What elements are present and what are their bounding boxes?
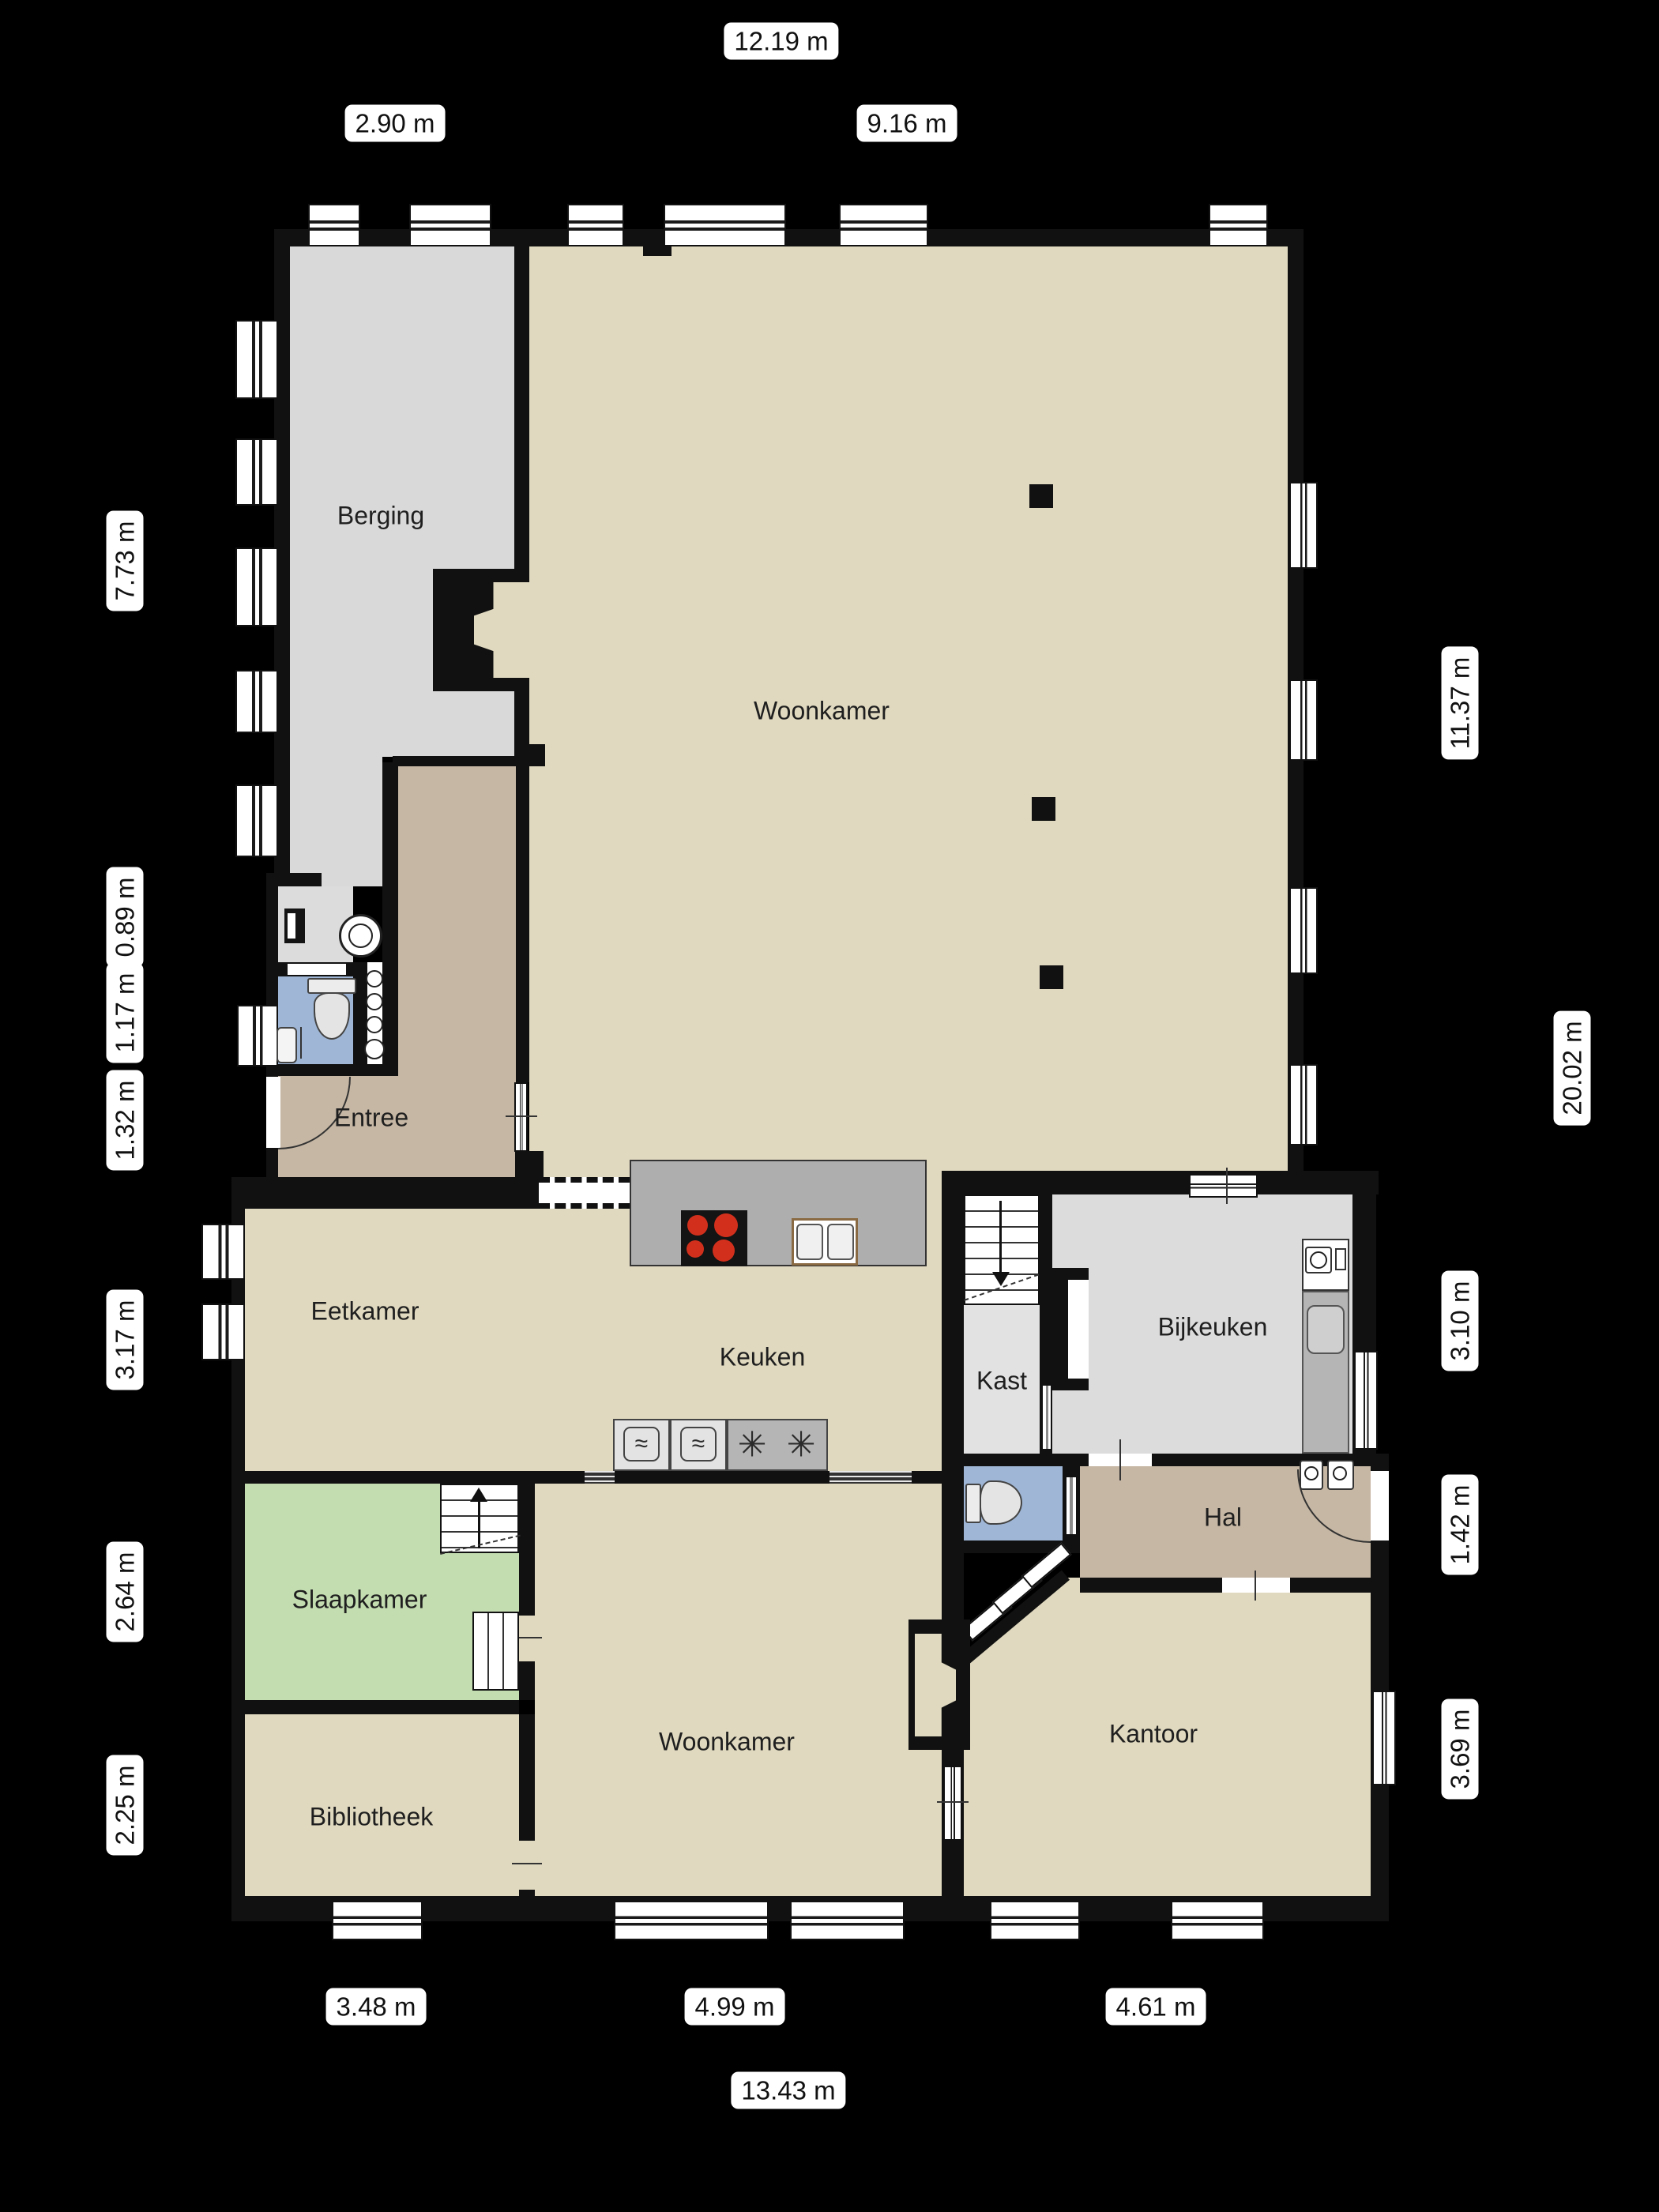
floor-plan: ≈ ≈ ✳ ✳ Berging Woonkamer Entree Eetkame… [0, 0, 1659, 2212]
washer-drum-icon [1310, 1251, 1327, 1269]
heater-unit-inner [288, 913, 295, 939]
meter-icon [366, 970, 383, 987]
room-woonkamer-beneden [535, 1484, 942, 1896]
dimension-tick [300, 1027, 302, 1059]
wall [516, 766, 529, 1082]
sink-basin [827, 1224, 854, 1260]
door-toilet-hal [1065, 1476, 1078, 1536]
meter-icon [366, 1016, 383, 1033]
sink-basin [796, 1224, 823, 1260]
wall [231, 1700, 519, 1714]
bijkeuken-sink-icon [1307, 1305, 1345, 1354]
dim-top-right: 9.16 m [857, 105, 957, 142]
wall [266, 1177, 539, 1209]
room-woonkamer-boven [529, 246, 1288, 1177]
device-dial-icon [1333, 1466, 1347, 1480]
window [409, 204, 491, 246]
dim-left-bibliotheek: 2.25 m [107, 1755, 144, 1856]
dimension-tick [512, 1863, 542, 1864]
dim-right-hal: 1.42 m [1442, 1475, 1479, 1575]
boiler-inner [348, 924, 373, 948]
dim-bottom-woonkamer: 4.99 m [685, 1988, 785, 2026]
window [1289, 887, 1318, 974]
wall [393, 756, 516, 766]
room-label-kantoor: Kantoor [1109, 1720, 1198, 1749]
glass-door-entree-woonkamer [514, 1082, 528, 1152]
water-meter-icon [364, 1039, 385, 1059]
chimney-bijkeuken-niche [1068, 1280, 1089, 1379]
door-opening-bibliotheek [519, 1841, 535, 1890]
window [614, 1901, 769, 1940]
dim-right-total: 20.02 m [1554, 1010, 1591, 1125]
window [235, 320, 278, 399]
window [1289, 482, 1318, 569]
door-opening-slaapkamer [519, 1616, 535, 1661]
dim-left-meterkast: 0.89 m [107, 867, 144, 968]
room-label-kast: Kast [976, 1367, 1027, 1396]
laundry-basket-icon [1335, 1248, 1346, 1270]
dim-top-left: 2.90 m [345, 105, 446, 142]
dim-left-toilet: 1.17 m [107, 963, 144, 1063]
wardrobe-icon [472, 1612, 519, 1691]
window [235, 784, 278, 857]
dim-bottom-bibliotheek: 3.48 m [326, 1988, 427, 2026]
room-label-berging: Berging [337, 502, 424, 531]
dim-left-entree: 1.32 m [107, 1070, 144, 1171]
dim-bottom-total: 13.43 m [731, 2072, 845, 2109]
room-label-eetkamer: Eetkamer [311, 1297, 419, 1326]
wall [942, 1171, 964, 1471]
wall [266, 1064, 398, 1076]
column [1029, 484, 1053, 508]
window [235, 547, 278, 626]
window [201, 1303, 245, 1360]
staircase-down [964, 1194, 1040, 1305]
window [664, 204, 786, 246]
toilet-tank [965, 1484, 981, 1523]
dim-right-woonkamer: 11.37 m [1442, 647, 1479, 760]
room-label-hal: Hal [1204, 1503, 1242, 1533]
door-opening-toilet-entree [288, 964, 346, 975]
hatched-wall-segment [585, 1471, 615, 1484]
keuken-passage-strip [927, 1177, 942, 1209]
door-opening-hal-kantoor [1222, 1578, 1290, 1593]
window [990, 1901, 1080, 1940]
dimension-tick [1255, 1571, 1256, 1601]
window [308, 204, 360, 246]
window [839, 204, 928, 246]
dim-left-berging: 7.73 m [107, 511, 144, 611]
window [235, 438, 278, 506]
wall [515, 1151, 544, 1177]
glass-door-kast-bijkeuken [1041, 1384, 1052, 1450]
burner-icon [687, 1215, 708, 1236]
room-label-entree: Entree [334, 1104, 408, 1133]
meter-icon [366, 993, 383, 1010]
room-label-woonkamer-beneden: Woonkamer [659, 1728, 795, 1757]
oven-wave-icon: ≈ [635, 1431, 648, 1458]
dim-left-eetkamer: 3.17 m [107, 1290, 144, 1390]
burner-icon [687, 1240, 704, 1258]
window [1289, 1064, 1318, 1145]
window [1171, 1901, 1264, 1940]
dimension-tick [1119, 1439, 1121, 1480]
room-label-keuken: Keuken [720, 1343, 806, 1372]
room-entree-corridor [398, 766, 516, 1177]
freezer-star-icon: ✳ [787, 1425, 816, 1465]
window-woonkamer-rechts [943, 1766, 962, 1841]
window-bijkeuken-top [1189, 1174, 1258, 1198]
burner-icon [713, 1240, 735, 1262]
dim-top-total: 12.19 m [724, 23, 838, 60]
room-label-bijkeuken: Bijkeuken [1158, 1313, 1268, 1342]
dim-left-slaapkamer: 2.64 m [107, 1542, 144, 1642]
wall [382, 762, 398, 1074]
kitchen-island-counter [630, 1160, 927, 1266]
freezer-star-icon: ✳ [738, 1425, 767, 1465]
window [235, 670, 278, 733]
hal-door-opening [1371, 1471, 1389, 1540]
window [567, 204, 624, 246]
dim-right-bijkeuken: 3.10 m [1442, 1271, 1479, 1371]
hatched-wall-segment [829, 1471, 912, 1484]
window-kantoor-right [1372, 1691, 1396, 1785]
stairs-arrow-line [999, 1201, 1002, 1273]
dim-right-kantoor: 3.69 m [1442, 1699, 1479, 1800]
opening-meterkast [322, 873, 382, 886]
window [1209, 204, 1268, 246]
column [1040, 965, 1063, 989]
window [201, 1224, 245, 1280]
toilet-tank [307, 978, 356, 994]
device-dial-icon [1304, 1466, 1319, 1480]
wall [942, 1171, 1379, 1194]
dim-bottom-kantoor: 4.61 m [1106, 1988, 1206, 2026]
room-berging-lower [290, 757, 382, 886]
burner-icon [714, 1213, 738, 1237]
washbasin-icon [276, 1027, 297, 1063]
room-label-bibliotheek: Bibliotheek [310, 1803, 434, 1832]
column [1032, 797, 1055, 821]
window [237, 1005, 278, 1066]
wall [519, 1484, 535, 1700]
oven-wave-icon: ≈ [692, 1431, 705, 1458]
room-label-woonkamer-boven: Woonkamer [754, 697, 890, 726]
window [1289, 679, 1318, 761]
open-plan-dashed-divider [539, 1177, 630, 1209]
dimension-tick [506, 1115, 537, 1117]
stairs-arrow-line [478, 1499, 480, 1548]
wall [527, 744, 545, 766]
dimension-tick [1226, 1168, 1228, 1204]
wall [942, 1466, 964, 1619]
wall [274, 873, 322, 886]
window-bijkeuken-right [1354, 1351, 1378, 1450]
room-label-slaapkamer: Slaapkamer [292, 1586, 427, 1615]
dimension-tick [937, 1801, 969, 1803]
wall [231, 1189, 245, 1921]
wall [519, 1714, 535, 1921]
window [790, 1901, 905, 1940]
window [332, 1901, 423, 1940]
